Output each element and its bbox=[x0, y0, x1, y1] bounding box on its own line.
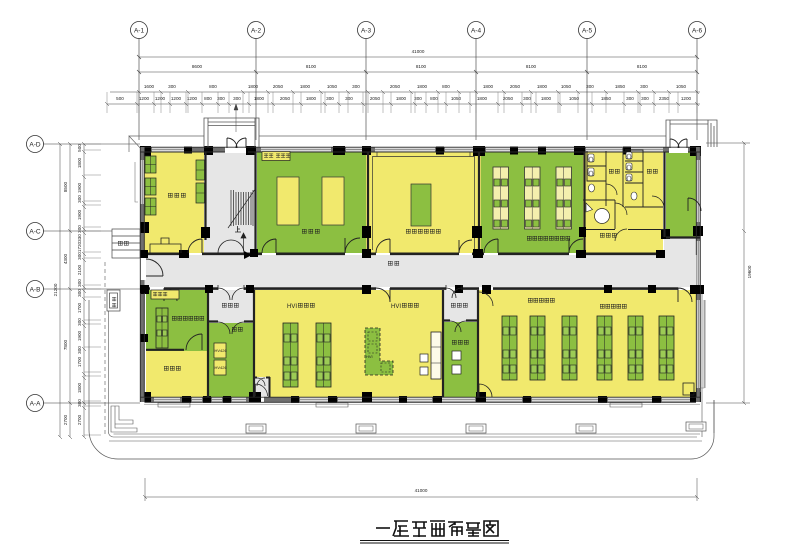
svg-text:8600: 8600 bbox=[192, 64, 203, 69]
svg-text:A-3: A-3 bbox=[361, 28, 372, 35]
svg-text:500: 500 bbox=[77, 144, 82, 152]
svg-text:1200: 1200 bbox=[681, 96, 692, 101]
svg-text:300: 300 bbox=[77, 399, 82, 407]
svg-text:HVI: HVI bbox=[366, 354, 373, 359]
svg-text:300: 300 bbox=[77, 279, 82, 287]
svg-text:1800: 1800 bbox=[483, 84, 494, 89]
svg-text:1200: 1200 bbox=[187, 96, 198, 101]
svg-text:1700: 1700 bbox=[77, 302, 82, 313]
svg-text:A-5: A-5 bbox=[582, 28, 593, 35]
svg-text:2050: 2050 bbox=[273, 84, 284, 89]
svg-text:1050: 1050 bbox=[451, 96, 462, 101]
svg-text:300: 300 bbox=[352, 84, 360, 89]
svg-text:1800: 1800 bbox=[306, 96, 317, 101]
svg-text:A-A: A-A bbox=[30, 401, 42, 408]
svg-text:2050: 2050 bbox=[280, 96, 291, 101]
svg-text:1200: 1200 bbox=[139, 96, 150, 101]
svg-text:1600: 1600 bbox=[144, 84, 155, 89]
svg-text:1050: 1050 bbox=[676, 84, 687, 89]
svg-text:300: 300 bbox=[233, 96, 241, 101]
svg-text:300: 300 bbox=[77, 318, 82, 326]
svg-text:300: 300 bbox=[523, 96, 531, 101]
svg-text:41000: 41000 bbox=[415, 488, 428, 493]
svg-text:8100: 8100 bbox=[306, 64, 317, 69]
svg-text:1800: 1800 bbox=[248, 84, 259, 89]
svg-text:2700: 2700 bbox=[77, 414, 82, 425]
svg-text:300: 300 bbox=[345, 96, 353, 101]
svg-text:1700: 1700 bbox=[77, 356, 82, 367]
svg-text:A-6: A-6 bbox=[692, 28, 703, 35]
svg-text:300: 300 bbox=[77, 195, 82, 203]
svg-text:1800: 1800 bbox=[477, 96, 488, 101]
svg-text:HVI: HVI bbox=[391, 304, 401, 310]
svg-text:300: 300 bbox=[77, 346, 82, 354]
svg-text:1800: 1800 bbox=[77, 382, 82, 393]
svg-text:1900: 1900 bbox=[77, 330, 82, 341]
svg-text:300: 300 bbox=[326, 96, 334, 101]
svg-text:300: 300 bbox=[641, 96, 649, 101]
svg-text:7800: 7800 bbox=[63, 339, 68, 350]
svg-text:2050: 2050 bbox=[503, 96, 514, 101]
svg-text:A-1: A-1 bbox=[134, 28, 145, 35]
svg-text:300: 300 bbox=[640, 84, 648, 89]
svg-text:2050: 2050 bbox=[390, 84, 401, 89]
svg-text:300: 300 bbox=[77, 225, 82, 233]
svg-text:1200: 1200 bbox=[171, 96, 182, 101]
svg-text:1800: 1800 bbox=[77, 157, 82, 168]
svg-text:1720: 1720 bbox=[77, 241, 82, 252]
svg-text:4300: 4300 bbox=[63, 253, 68, 264]
svg-text:1800: 1800 bbox=[541, 96, 552, 101]
svg-text:300: 300 bbox=[626, 96, 634, 101]
svg-text:800: 800 bbox=[442, 84, 450, 89]
svg-text:HV426: HV426 bbox=[215, 348, 228, 353]
svg-text:800: 800 bbox=[204, 96, 212, 101]
svg-text:A-D: A-D bbox=[29, 142, 41, 149]
svg-text:19600: 19600 bbox=[747, 265, 752, 278]
svg-text:41000: 41000 bbox=[412, 49, 425, 54]
svg-text:1800: 1800 bbox=[396, 96, 407, 101]
svg-text:HVI: HVI bbox=[287, 304, 297, 310]
svg-text:8100: 8100 bbox=[526, 64, 537, 69]
svg-text:800: 800 bbox=[430, 96, 438, 101]
svg-text:A-B: A-B bbox=[30, 287, 41, 294]
svg-text:2350: 2350 bbox=[659, 96, 670, 101]
svg-text:2700: 2700 bbox=[63, 414, 68, 425]
svg-text:300: 300 bbox=[168, 84, 176, 89]
svg-text:300: 300 bbox=[217, 96, 225, 101]
svg-text:A-C: A-C bbox=[29, 229, 41, 236]
svg-text:1850: 1850 bbox=[615, 84, 626, 89]
svg-text:2050: 2050 bbox=[370, 96, 381, 101]
svg-text:1800: 1800 bbox=[300, 84, 311, 89]
svg-text:1050: 1050 bbox=[327, 84, 338, 89]
svg-text:300: 300 bbox=[77, 289, 82, 297]
svg-text:300: 300 bbox=[586, 84, 594, 89]
svg-text:HV426: HV426 bbox=[215, 365, 228, 370]
svg-text:1050: 1050 bbox=[561, 84, 572, 89]
svg-text:8100: 8100 bbox=[637, 64, 648, 69]
svg-text:800: 800 bbox=[209, 84, 217, 89]
svg-text:A-2: A-2 bbox=[251, 28, 262, 35]
svg-text:A-4: A-4 bbox=[471, 28, 482, 35]
svg-text:1800: 1800 bbox=[254, 96, 265, 101]
svg-text:8100: 8100 bbox=[416, 64, 427, 69]
svg-text:1800: 1800 bbox=[537, 84, 548, 89]
svg-text:300: 300 bbox=[414, 96, 422, 101]
svg-text:21200: 21200 bbox=[53, 283, 58, 296]
svg-text:1900: 1900 bbox=[77, 182, 82, 193]
svg-text:1900: 1900 bbox=[77, 209, 82, 220]
svg-text:2100: 2100 bbox=[77, 264, 82, 275]
svg-text:330: 330 bbox=[77, 234, 82, 242]
svg-text:2050: 2050 bbox=[510, 84, 521, 89]
svg-text:300: 300 bbox=[77, 252, 82, 260]
svg-text:8500: 8500 bbox=[63, 181, 68, 192]
svg-text:1800: 1800 bbox=[417, 84, 428, 89]
svg-text:1200: 1200 bbox=[155, 96, 166, 101]
svg-text:500: 500 bbox=[116, 96, 124, 101]
